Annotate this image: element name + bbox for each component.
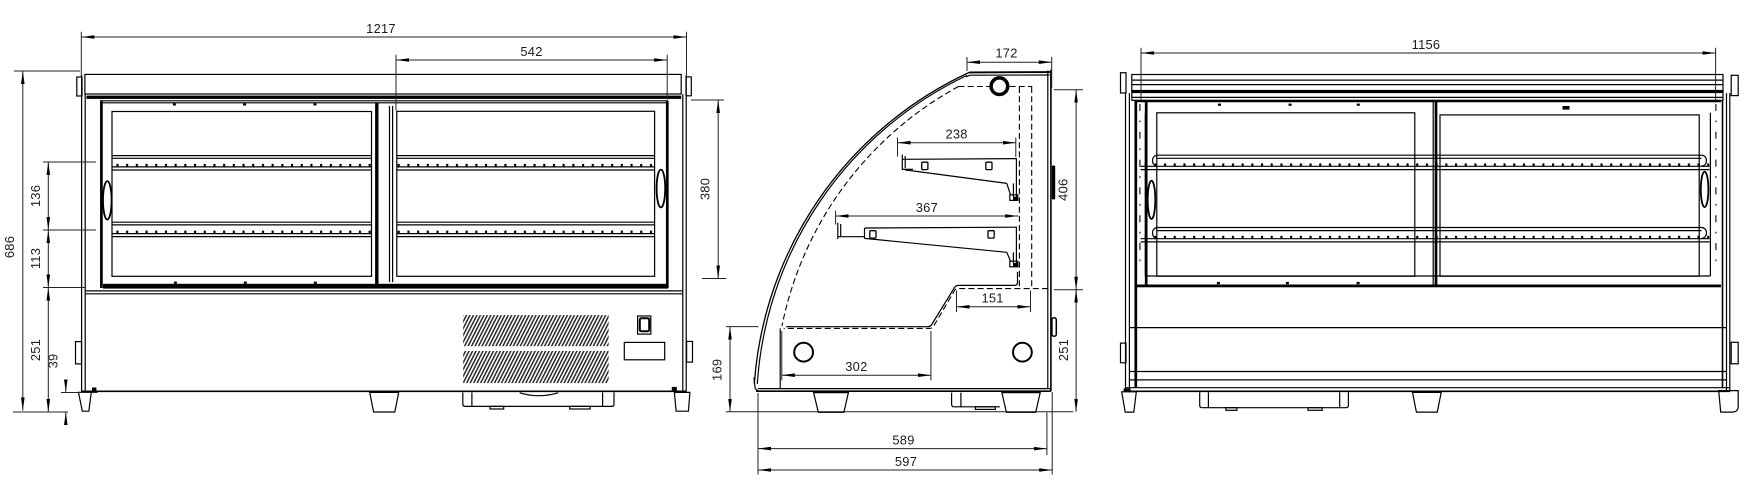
svg-text:542: 542 [520, 44, 542, 59]
svg-text:1156: 1156 [1412, 37, 1441, 52]
svg-text:367: 367 [916, 200, 938, 215]
svg-text:238: 238 [945, 127, 967, 142]
svg-text:380: 380 [698, 178, 713, 200]
svg-text:597: 597 [895, 454, 917, 469]
svg-text:686: 686 [2, 236, 17, 258]
svg-text:251: 251 [1056, 339, 1071, 361]
svg-text:136: 136 [28, 185, 43, 207]
svg-text:172: 172 [995, 46, 1017, 61]
svg-text:302: 302 [845, 359, 867, 374]
svg-text:406: 406 [1056, 179, 1071, 201]
svg-text:151: 151 [981, 291, 1003, 306]
svg-text:113: 113 [28, 248, 43, 269]
svg-text:169: 169 [710, 359, 725, 381]
svg-text:1217: 1217 [366, 21, 396, 36]
svg-text:39: 39 [46, 354, 61, 369]
svg-text:251: 251 [28, 339, 43, 361]
svg-text:589: 589 [892, 433, 914, 448]
